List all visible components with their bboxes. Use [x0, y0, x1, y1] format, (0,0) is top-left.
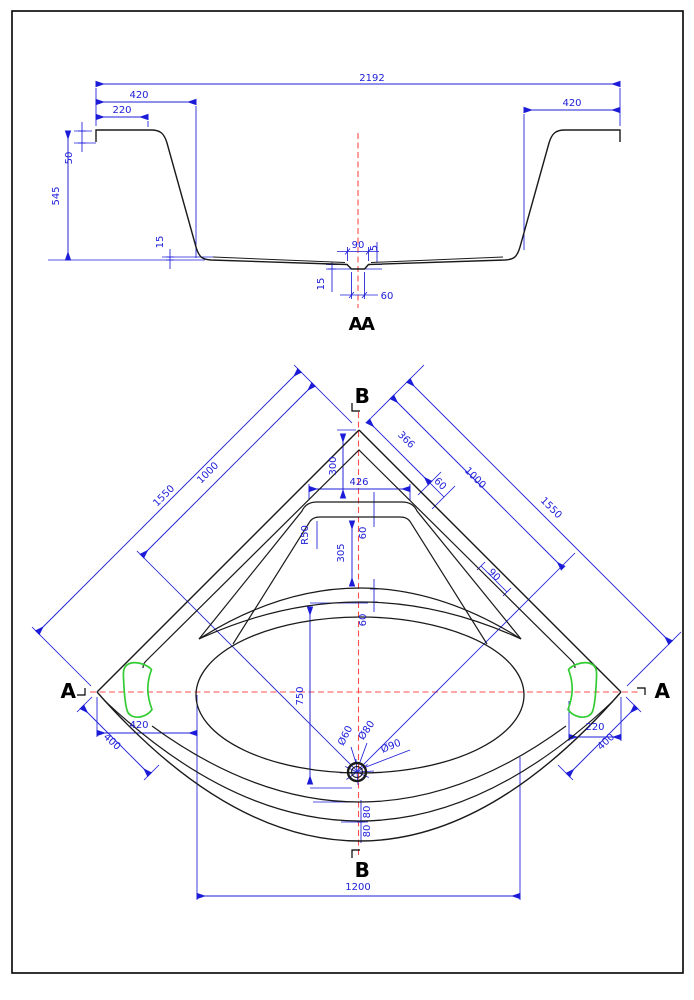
bowl-ellipse: [196, 617, 524, 773]
dim-label-recess-top: 90: [352, 240, 365, 251]
technical-drawing-svg: 219242022042050545159051560AA15501000155…: [0, 0, 694, 1000]
dim-label-height: 545: [51, 186, 62, 205]
dim-label-flange-right: 420: [562, 98, 581, 109]
page-border: [12, 11, 683, 973]
marker-a-right: A: [655, 679, 671, 703]
ext: [144, 765, 159, 780]
drawing-page: 219242022042050545159051560AA15501000155…: [0, 0, 694, 1000]
dim-label-recess-depth: 5: [369, 245, 380, 251]
headrest-left: [123, 663, 152, 718]
dim-label-400-right: 400: [596, 732, 617, 753]
dim-label-750: 750: [295, 686, 306, 705]
dim-label-r50: R50: [300, 525, 311, 545]
backrest-arc-upper: [199, 588, 521, 639]
dim-1550-left: [38, 371, 300, 633]
dim-label-426: 426: [349, 477, 368, 488]
dim-label-1200: 1200: [345, 882, 370, 893]
dim-label-d90: Ø90: [379, 737, 403, 756]
headrest-right: [568, 663, 597, 718]
dim-label-80-b: 80: [362, 825, 373, 838]
ext: [366, 365, 424, 423]
rim-edge-right: [359, 430, 621, 692]
leader-drain-60: [351, 747, 356, 763]
dim-label-80-a: 80: [362, 806, 373, 819]
section-mark-a-left: [77, 688, 85, 695]
ext: [294, 365, 352, 423]
ext: [627, 632, 681, 686]
dim-label-60-bowl: 60: [358, 614, 369, 627]
dim-label-recess-bottom: 60: [381, 291, 394, 302]
rim-edge-left: [97, 430, 359, 692]
marker-b-bottom: B: [355, 858, 370, 882]
ext: [32, 627, 91, 686]
dim-label-step-left: 15: [155, 236, 166, 249]
dim-label-recess-side: 15: [316, 278, 327, 291]
marker-a-left: A: [61, 679, 77, 703]
dim-label-flange-left: 420: [129, 90, 148, 101]
dim-366: [368, 421, 430, 483]
dim-label-300: 300: [328, 456, 339, 475]
section-mark-a-right: [637, 688, 645, 695]
dim-label-305: 305: [336, 543, 347, 562]
section-title-aa: AA: [349, 314, 375, 335]
ext-drain-right: [357, 553, 575, 771]
dim-label-60-edge: 60: [431, 476, 448, 493]
dim-label-90-edge: 90: [485, 567, 502, 584]
dim-label-d60: Ø60: [335, 724, 355, 748]
dim-label-220-plan: 220: [585, 722, 604, 733]
dim-label-overall: 2192: [359, 73, 384, 84]
marker-b-top: B: [355, 384, 370, 408]
dim-1000-left: [142, 385, 314, 557]
dim-label-flange-left-inner: 220: [112, 105, 131, 116]
dim-label-366: 366: [395, 430, 416, 451]
dim-label-60-shelf: 60: [358, 527, 369, 540]
dim-label-lip: 50: [64, 152, 75, 165]
dim-label-400-left: 400: [101, 732, 122, 753]
dim-label-420-plan: 420: [129, 720, 148, 731]
leader-drain-80: [360, 743, 367, 762]
dim-label-1000-left: 1000: [195, 460, 221, 486]
dim-label-1550-right: 1550: [538, 495, 564, 521]
dim-label-1000-right: 1000: [462, 465, 488, 491]
